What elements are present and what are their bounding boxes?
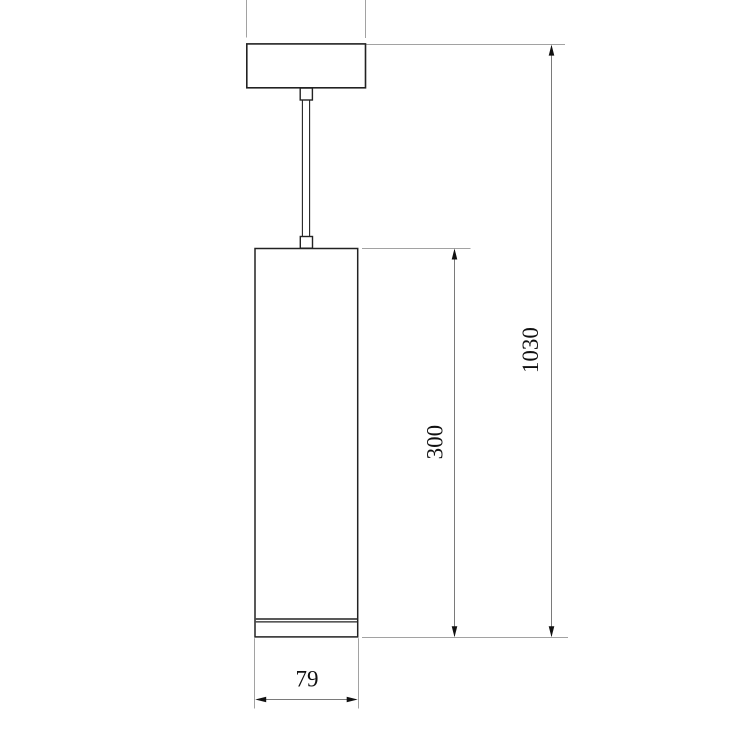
svg-text:1030: 1030 xyxy=(518,327,543,373)
svg-text:300: 300 xyxy=(422,425,447,460)
svg-text:79: 79 xyxy=(296,666,319,691)
